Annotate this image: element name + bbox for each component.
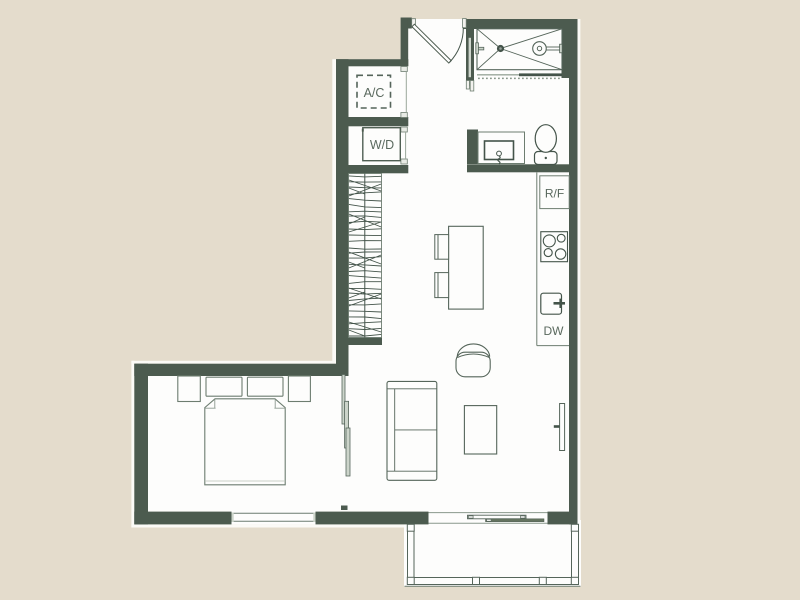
svg-text:DW: DW xyxy=(544,324,565,338)
svg-text:R/F: R/F xyxy=(545,187,564,201)
svg-text:W/D: W/D xyxy=(370,138,394,152)
svg-text:A/C: A/C xyxy=(364,86,385,100)
